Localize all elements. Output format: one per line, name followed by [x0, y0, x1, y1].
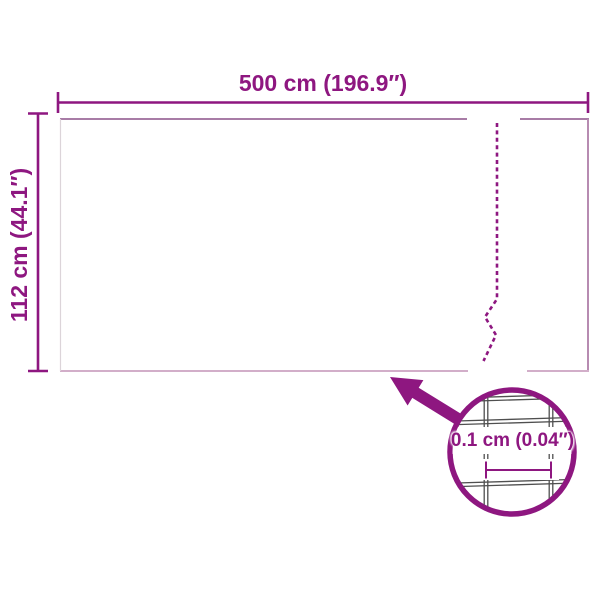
width-label: 500 cm (196.9″): [58, 70, 588, 96]
product-outline: [60, 119, 589, 372]
mesh-size-label: 0.1 cm (0.04″): [443, 429, 582, 452]
magnifier-circle: [448, 386, 578, 518]
zoom-arrow-icon: [390, 377, 465, 427]
height-label: 112 cm (44.1″): [6, 113, 34, 377]
product-dimension-diagram: 500 cm (196.9″) 112 cm (44.1″) 0.1 cm (0…: [0, 0, 600, 600]
material-break-dashed-line: [484, 123, 498, 361]
